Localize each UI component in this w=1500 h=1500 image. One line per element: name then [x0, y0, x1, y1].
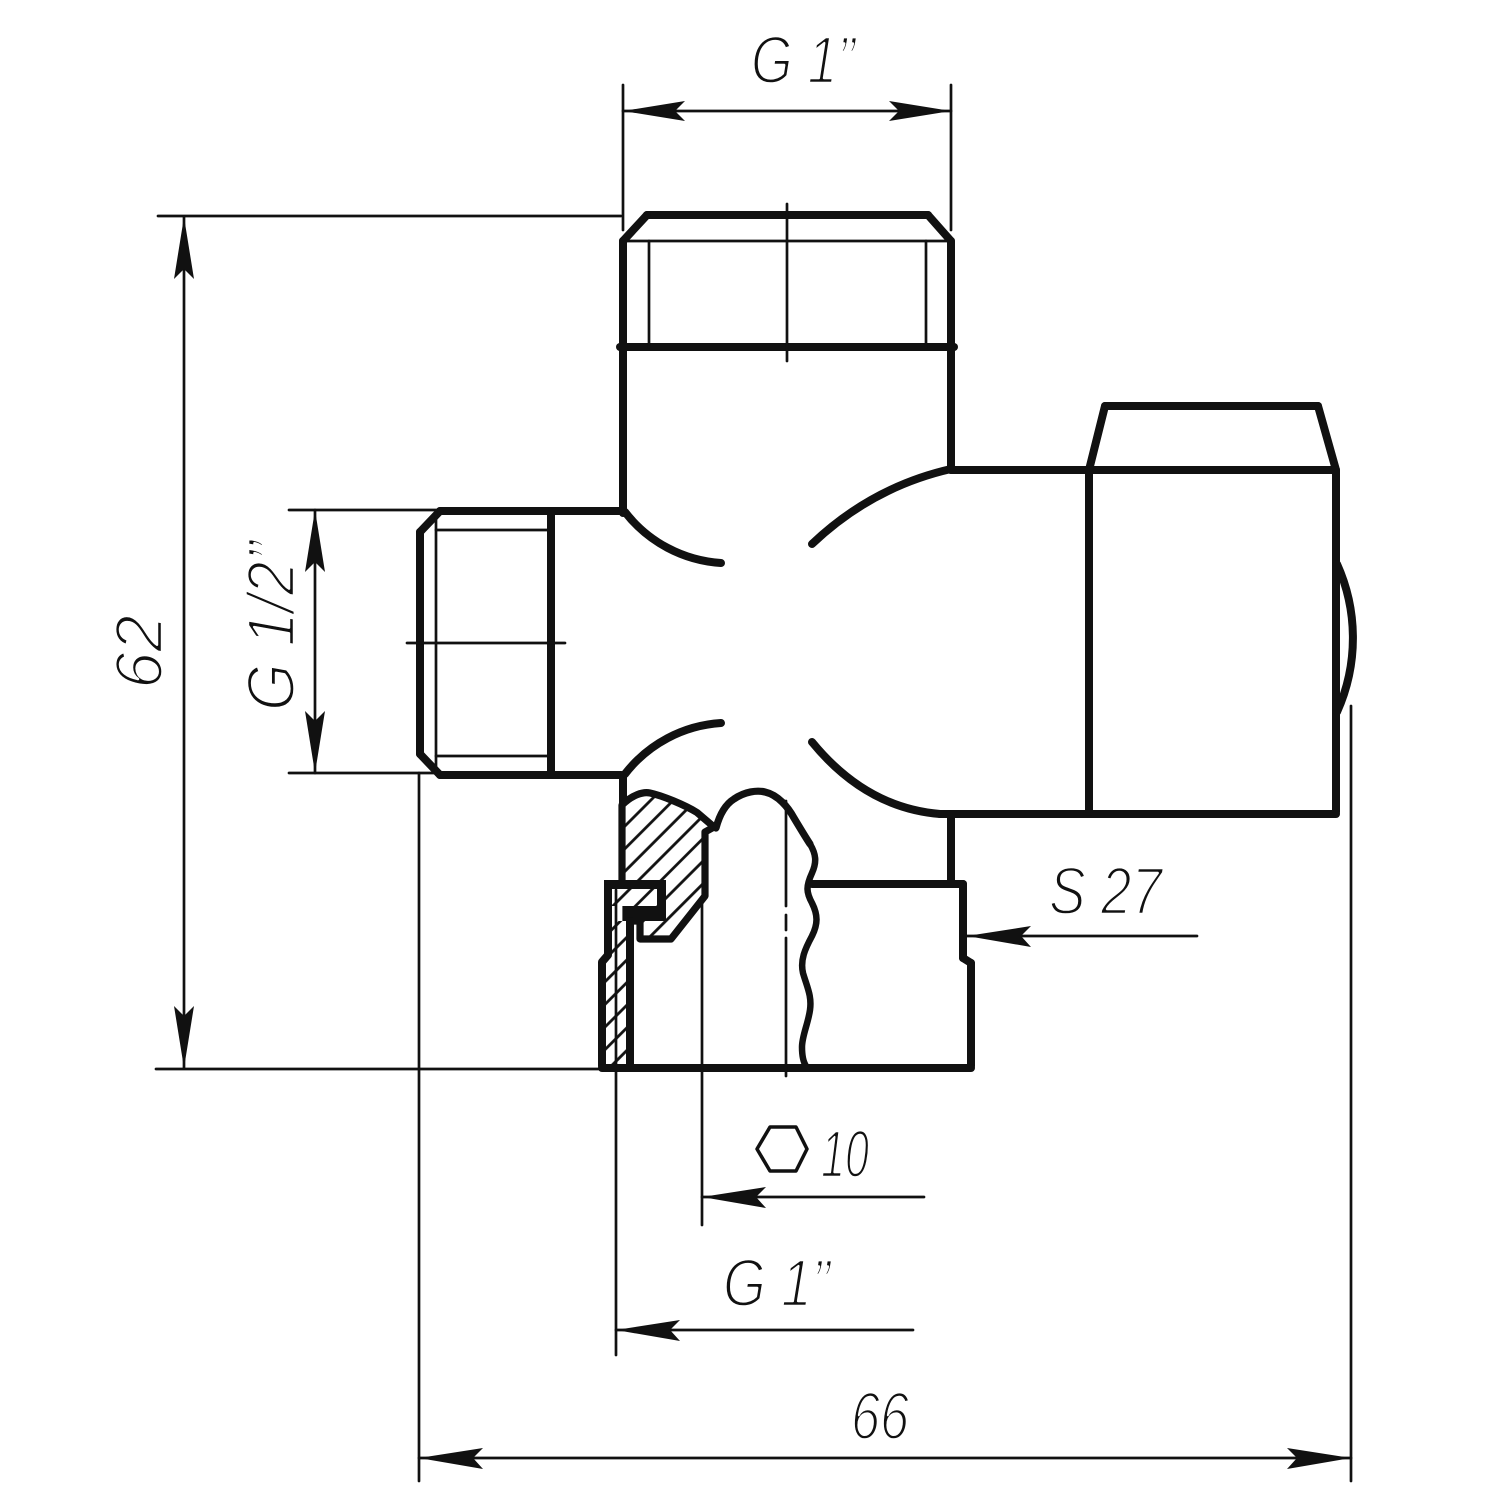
svg-text:62: 62 [102, 615, 177, 689]
svg-text:G 1/2”: G 1/2” [234, 539, 309, 711]
svg-text:G 1”: G 1” [751, 23, 857, 98]
svg-text:10: 10 [821, 1117, 869, 1192]
svg-text:66: 66 [851, 1379, 910, 1454]
svg-text:S 27: S 27 [1049, 854, 1164, 929]
svg-text:G 1”: G 1” [723, 1246, 832, 1321]
